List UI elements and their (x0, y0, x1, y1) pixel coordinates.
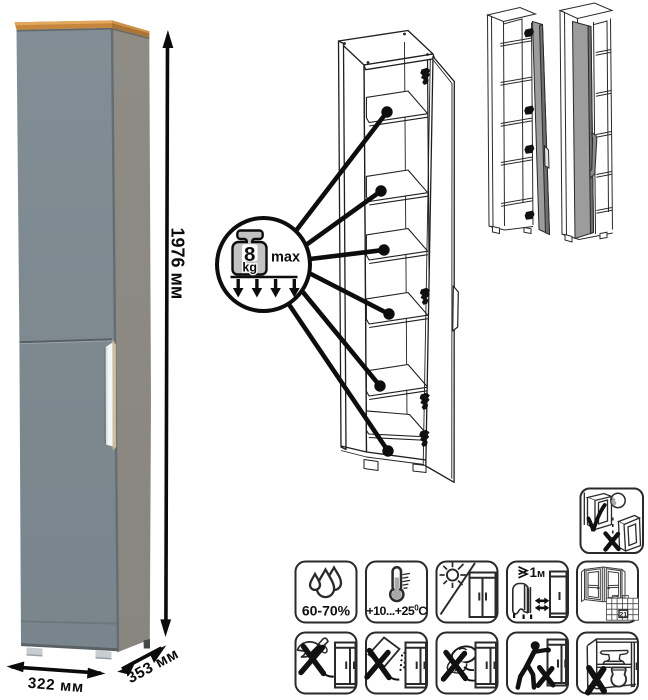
svg-text:1976 мм: 1976 мм (168, 228, 188, 300)
svg-text:322 мм: 322 мм (27, 675, 84, 696)
svg-text:+10...+250C: +10...+250C (366, 604, 427, 618)
svg-text:kg: kg (242, 260, 257, 274)
svg-text:max: max (271, 250, 300, 266)
svg-text:21: 21 (620, 611, 628, 618)
svg-text:1м: 1м (530, 565, 546, 580)
svg-text:60-70%: 60-70% (302, 603, 351, 619)
